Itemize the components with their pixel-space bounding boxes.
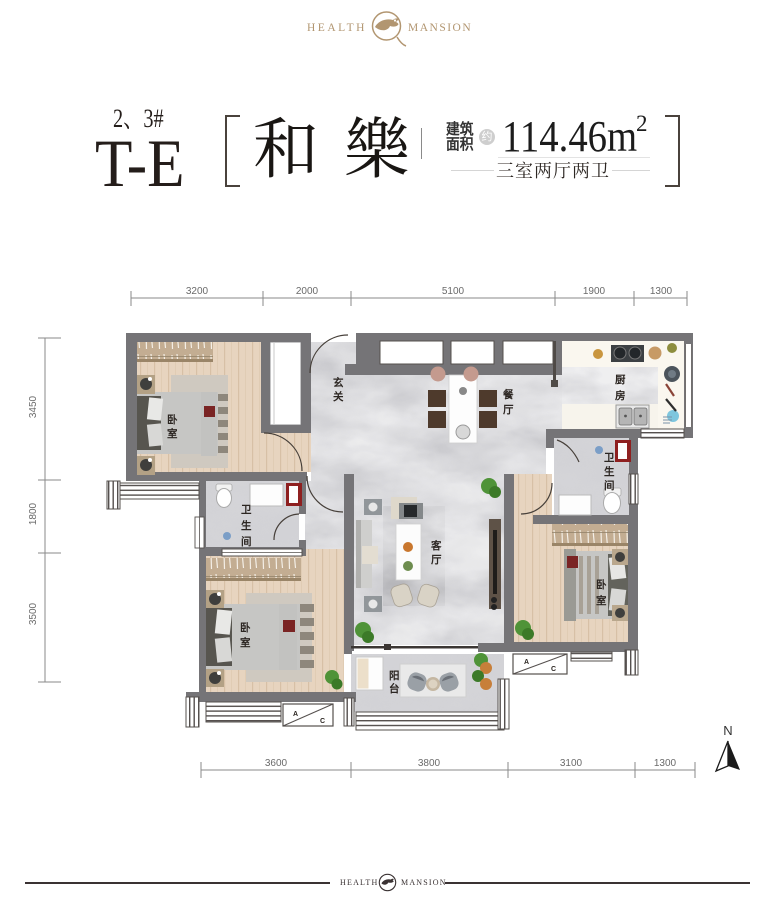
svg-text:卫: 卫 <box>241 504 252 516</box>
svg-text:1300: 1300 <box>650 286 673 297</box>
svg-text:N: N <box>723 723 732 738</box>
svg-text:厅: 厅 <box>431 554 442 566</box>
svg-text:阳: 阳 <box>389 670 400 682</box>
svg-text:室: 室 <box>167 427 178 440</box>
svg-text:3600: 3600 <box>265 758 288 769</box>
svg-text:1900: 1900 <box>583 286 606 297</box>
svg-text:房: 房 <box>615 389 626 402</box>
svg-text:卫: 卫 <box>604 452 615 464</box>
svg-text:餐: 餐 <box>502 388 514 401</box>
svg-text:C: C <box>320 718 325 725</box>
svg-text:玄: 玄 <box>333 376 344 389</box>
svg-text:室: 室 <box>596 594 607 607</box>
svg-text:室: 室 <box>240 636 251 649</box>
svg-text:5100: 5100 <box>442 286 465 297</box>
svg-text:厅: 厅 <box>503 404 514 416</box>
svg-text:卧: 卧 <box>596 578 607 591</box>
svg-text:客: 客 <box>430 539 442 552</box>
svg-text:1300: 1300 <box>654 758 677 769</box>
svg-text:3450: 3450 <box>28 395 39 418</box>
svg-text:C: C <box>551 666 556 673</box>
svg-text:2000: 2000 <box>296 286 319 297</box>
svg-text:厨: 厨 <box>615 374 626 386</box>
svg-text:3800: 3800 <box>418 758 441 769</box>
svg-text:卧: 卧 <box>240 621 251 634</box>
svg-text:3500: 3500 <box>28 602 39 625</box>
svg-text:关: 关 <box>333 390 344 403</box>
svg-text:生: 生 <box>241 519 252 532</box>
svg-text:A: A <box>293 711 298 718</box>
svg-text:台: 台 <box>389 682 400 695</box>
svg-text:3200: 3200 <box>186 286 209 297</box>
svg-text:1800: 1800 <box>28 502 39 525</box>
svg-text:间: 间 <box>241 535 252 548</box>
svg-text:生: 生 <box>604 465 615 478</box>
svg-text:卧: 卧 <box>167 413 178 426</box>
svg-text:间: 间 <box>604 479 615 492</box>
svg-text:A: A <box>524 659 529 666</box>
svg-text:3100: 3100 <box>560 758 583 769</box>
